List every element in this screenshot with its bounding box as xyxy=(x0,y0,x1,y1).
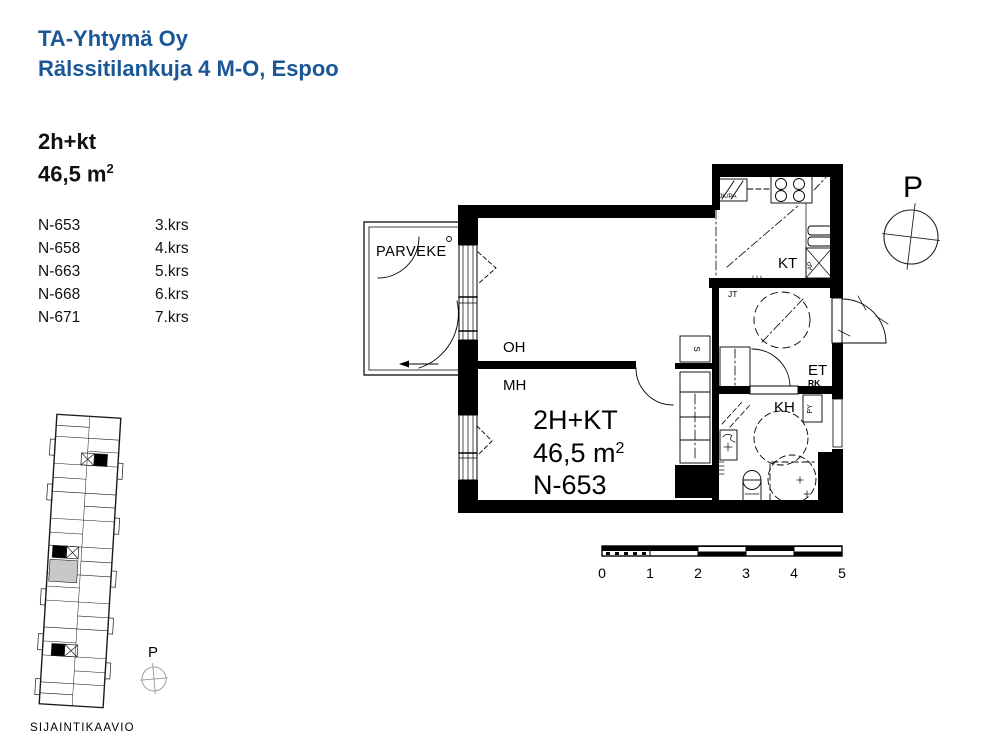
plan-area: 46,5 m2 xyxy=(533,438,625,468)
site-plan: P SIJAINTIKAAVIO xyxy=(30,414,169,734)
bedroom-door-arc xyxy=(636,368,673,405)
washing-machine-label: PY xyxy=(807,404,814,414)
arrow-left-icon xyxy=(399,361,409,368)
fridge-label: JK/PA xyxy=(719,193,737,200)
floor-plan: PARVEKE OH MH KT JT ET RK KH PY S JK/PA … xyxy=(364,164,888,513)
rk-label: RK xyxy=(808,378,821,388)
plan-id-block: 2H+KT 46,5 m2 N-653 xyxy=(533,405,625,500)
bathroom-door-arc xyxy=(752,349,790,387)
entry-label: ET xyxy=(808,362,827,379)
floorplan-sheet: TA-Yhtymä Oy Rälssitilankuja 4 M-O, Espo… xyxy=(0,0,1000,750)
scale-bar: 0 1 2 3 4 5 xyxy=(598,546,846,581)
wall-niche xyxy=(833,399,842,447)
north-compass: P xyxy=(878,171,944,273)
scale-tick: 3 xyxy=(742,565,750,581)
dishwasher-label: AP xyxy=(807,262,814,271)
bedroom-label: MH xyxy=(503,377,526,394)
entry-door xyxy=(832,296,888,343)
plan-type: 2H+KT xyxy=(533,405,618,435)
scale-tick: 5 xyxy=(838,565,846,581)
plan-unit-id: N-653 xyxy=(533,470,607,500)
bedroom-window xyxy=(459,415,477,480)
room-labels: PARVEKE OH MH KT JT ET RK KH PY S JK/PA … xyxy=(376,193,827,416)
balcony-window xyxy=(459,245,477,340)
north-label: P xyxy=(903,171,923,204)
site-plan-title: SIJAINTIKAAVIO xyxy=(30,722,135,734)
highlighted-unit xyxy=(49,559,78,583)
hall-fixtures xyxy=(720,292,810,394)
scale-tick: 1 xyxy=(646,565,654,581)
scale-ticks: 0 1 2 3 4 5 xyxy=(598,565,846,581)
jt-label: JT xyxy=(728,289,737,299)
scale-tick: 0 xyxy=(598,565,606,581)
wardrobe-column xyxy=(680,336,710,463)
living-room-label: OH xyxy=(503,339,526,356)
kitchen-label: KT xyxy=(778,255,797,272)
site-north-label: P xyxy=(148,644,158,661)
sink-icon xyxy=(808,226,832,235)
window-opening-marks xyxy=(477,252,496,456)
floor-plan-drawing: PARVEKE OH MH KT JT ET RK KH PY S JK/PA … xyxy=(0,0,1000,750)
scale-tick: 2 xyxy=(694,565,702,581)
bathroom-door-leaf xyxy=(750,386,798,394)
balcony-label: PARVEKE xyxy=(376,244,447,260)
bathroom-label: KH xyxy=(774,399,795,416)
compass-cross-icon xyxy=(878,200,944,274)
scale-tick: 4 xyxy=(790,565,798,581)
storage-label: S xyxy=(692,346,701,351)
turning-circle xyxy=(754,411,808,465)
site-compass-icon xyxy=(139,662,170,695)
kitchen-fixtures xyxy=(716,172,832,282)
